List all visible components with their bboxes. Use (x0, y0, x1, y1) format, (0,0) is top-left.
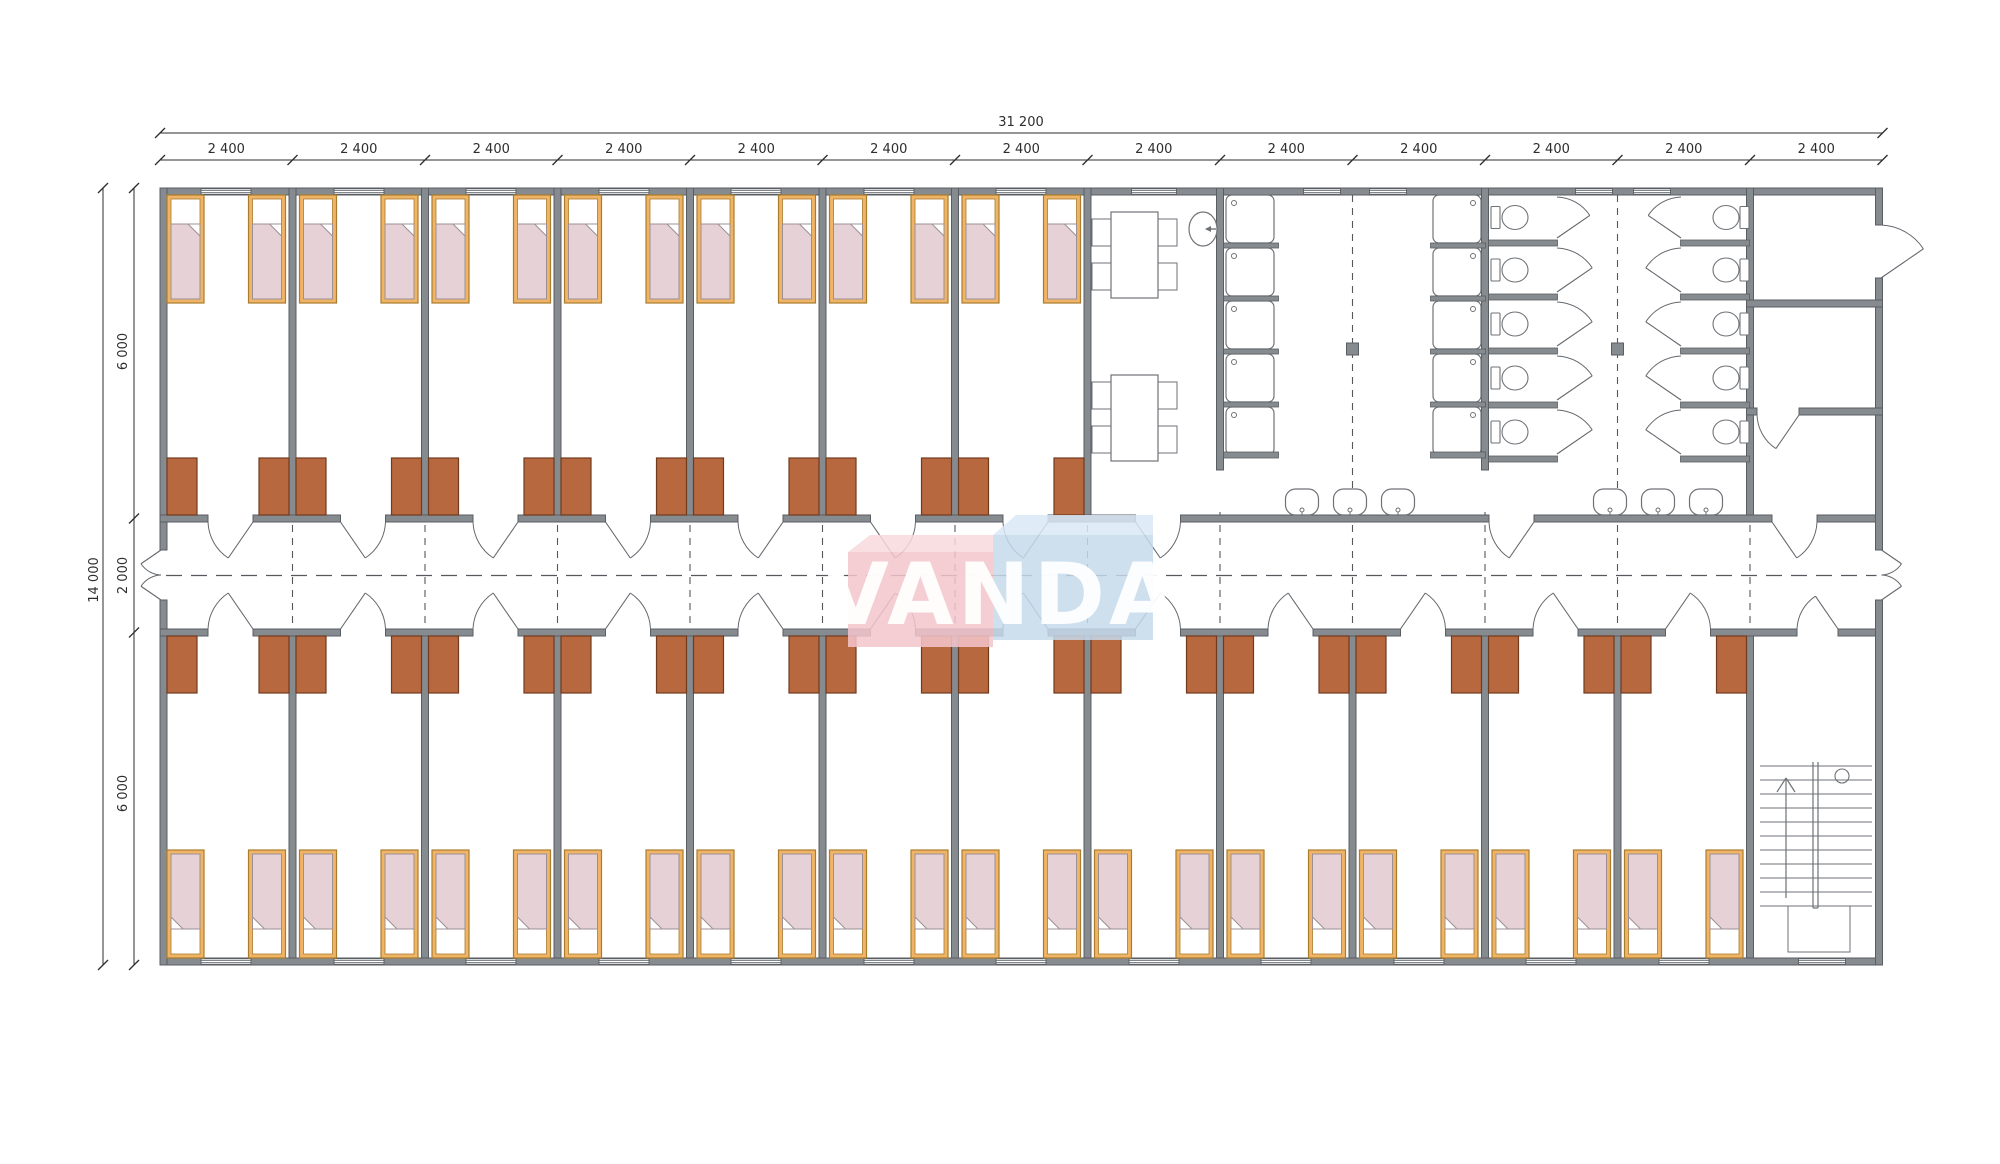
wall (160, 188, 167, 550)
wall (1876, 188, 1883, 225)
shower-divider (1224, 349, 1279, 354)
wardrobe (826, 458, 856, 515)
window (1659, 959, 1709, 964)
bed-pillow (304, 929, 333, 954)
wall (1181, 629, 1269, 636)
wardrobe (561, 458, 591, 515)
wall (651, 629, 739, 636)
bed-pillow (171, 199, 200, 224)
door-leaf (606, 522, 631, 558)
dim-module-label: 2 400 (1400, 142, 1437, 157)
wall (952, 188, 959, 515)
wall (1876, 600, 1883, 965)
wall (1084, 188, 1091, 515)
bed-blanket (385, 854, 414, 929)
door-swing (1557, 248, 1592, 268)
wardrobe (1452, 636, 1482, 693)
dim-total-width-label: 31 200 (998, 115, 1044, 130)
door-swing (1690, 593, 1710, 629)
wash-basin (1286, 489, 1319, 515)
window (1526, 959, 1576, 964)
door-swing (1557, 302, 1592, 322)
chair (1092, 426, 1112, 453)
wardrobe (657, 636, 687, 693)
wardrobe (1489, 636, 1519, 693)
wardrobe (1621, 636, 1651, 693)
logo-blue-flap (993, 515, 1153, 535)
door-leaf (758, 522, 783, 558)
toilet (1502, 206, 1528, 230)
wardrobe (524, 636, 554, 693)
bed-blanket (385, 224, 414, 299)
door-leaf (1557, 268, 1592, 292)
wall (819, 636, 826, 958)
shower-divider (1224, 296, 1279, 301)
window (1132, 189, 1177, 194)
bed-blanket (1313, 854, 1342, 929)
wardrobe (1187, 636, 1217, 693)
bed-pillow (171, 929, 200, 954)
wash-basin (1642, 489, 1675, 515)
stall-wall (1681, 456, 1750, 462)
wardrobe (167, 636, 197, 693)
door-swing (1557, 356, 1592, 376)
door-swing (1425, 593, 1445, 629)
door-swing (365, 522, 385, 558)
wall (253, 515, 341, 522)
bed-pillow (783, 929, 812, 954)
wall (1084, 636, 1091, 958)
column-marker (1347, 343, 1359, 355)
bed-blanket (436, 224, 465, 299)
bed-blanket (1364, 854, 1393, 929)
bed-pillow (1445, 929, 1474, 954)
bed-pillow (385, 929, 414, 954)
bed-blanket (783, 854, 812, 929)
bedroom-top-row (167, 195, 1081, 303)
bed-pillow (1496, 929, 1525, 954)
door-swing (473, 593, 493, 629)
bed-pillow (1048, 929, 1077, 954)
window (1304, 189, 1341, 194)
dim-module-label: 2 400 (340, 142, 377, 157)
bed-pillow (1364, 929, 1393, 954)
bed-blanket (171, 854, 200, 929)
bed-blanket (1496, 854, 1525, 929)
bed-blanket (569, 854, 598, 929)
bed-blanket (650, 854, 679, 929)
wall (518, 629, 606, 636)
wall (1482, 636, 1489, 958)
wardrobe (259, 458, 289, 515)
door-swing (1557, 197, 1590, 215)
door-leaf (1815, 596, 1838, 629)
door-swing (1268, 593, 1288, 629)
bed-blanket (915, 224, 944, 299)
bed-blanket (304, 224, 333, 299)
stair-marker (1835, 769, 1849, 783)
stall-wall (1489, 456, 1558, 462)
window (1799, 959, 1846, 964)
wall (554, 636, 561, 958)
wardrobe (167, 458, 197, 515)
window (1261, 959, 1311, 964)
toilet-tank (1491, 421, 1500, 443)
dim-module-label: 2 400 (473, 142, 510, 157)
bed-pillow (915, 199, 944, 224)
door-swing (1881, 225, 1923, 249)
wall (1799, 408, 1883, 415)
staircase (1760, 762, 1872, 952)
bed-blanket (518, 224, 547, 299)
door-swing (1557, 410, 1592, 430)
toilet-tank (1491, 313, 1500, 335)
bed-pillow (518, 929, 547, 954)
bed-blanket (1048, 854, 1077, 929)
wardrobe (429, 636, 459, 693)
wall (1578, 629, 1666, 636)
dim-module-label: 2 400 (1135, 142, 1172, 157)
wardrobe (694, 458, 724, 515)
window (731, 189, 781, 194)
bed-blanket (783, 224, 812, 299)
shower-divider (1224, 452, 1279, 458)
shower-tray (1433, 248, 1481, 296)
wash-basin (1382, 489, 1415, 515)
bed-pillow (569, 199, 598, 224)
door-leaf (1509, 522, 1534, 558)
door-leaf (606, 593, 631, 629)
dining-area (1092, 212, 1217, 461)
door-swing (1757, 415, 1776, 449)
dim-module-label: 2 400 (1533, 142, 1570, 157)
dim-left-label: 6 000 (116, 333, 131, 370)
wardrobe (1224, 636, 1254, 693)
door-leaf (1553, 593, 1578, 629)
door-leaf (1666, 593, 1691, 629)
wall (1181, 515, 1490, 522)
bed-blanket (966, 854, 995, 929)
stall-wall (1681, 348, 1750, 354)
wash-basin (1334, 489, 1367, 515)
dim-module-label: 2 400 (1003, 142, 1040, 157)
door-leaf (1646, 322, 1681, 346)
bed-blanket (701, 224, 730, 299)
door-leaf (341, 522, 366, 558)
bed-blanket (966, 224, 995, 299)
wall (916, 515, 1004, 522)
shower-divider (1431, 402, 1486, 407)
door-swing (1489, 522, 1509, 558)
floor-plan-canvas: 2 4002 4002 4002 4002 4002 4002 4002 400… (0, 0, 2000, 1164)
wash-basins (1286, 489, 1723, 515)
door-leaf (1288, 593, 1313, 629)
shower-divider (1431, 349, 1486, 354)
window (864, 959, 914, 964)
dim-module-label: 2 400 (870, 142, 907, 157)
bed-pillow (518, 199, 547, 224)
wall (289, 636, 296, 958)
wall (783, 515, 871, 522)
toilet (1713, 206, 1739, 230)
wardrobe (1356, 636, 1386, 693)
door-leaf (493, 593, 518, 629)
bed-blanket (171, 224, 200, 299)
bed-pillow (701, 199, 730, 224)
wall (422, 188, 429, 515)
bed-blanket (253, 854, 282, 929)
bed-blanket (701, 854, 730, 929)
wall (1747, 636, 1754, 958)
toilet (1713, 420, 1739, 444)
window (1394, 959, 1444, 964)
door-leaf (1646, 268, 1681, 292)
bed-blanket (1180, 854, 1209, 929)
door-leaf (1772, 522, 1797, 558)
shower-divider (1431, 243, 1486, 248)
shower-divider (1224, 243, 1279, 248)
door-swing (1648, 197, 1681, 215)
bed-pillow (385, 199, 414, 224)
bed-pillow (1099, 929, 1128, 954)
wall (1534, 515, 1772, 522)
bed-blanket (1048, 224, 1077, 299)
bed-blanket (915, 854, 944, 929)
bed-blanket (1099, 854, 1128, 929)
wall (952, 636, 959, 958)
wall (386, 515, 474, 522)
door-swing (1882, 564, 1902, 575)
toilet (1502, 312, 1528, 336)
door-leaf (1776, 415, 1799, 449)
wall (160, 600, 167, 965)
wall (554, 188, 561, 515)
bed-blanket (1231, 854, 1260, 929)
door-leaf (1646, 376, 1681, 400)
wardrobe (392, 636, 422, 693)
door-swing (365, 593, 385, 629)
column-marker (1612, 343, 1624, 355)
wash-basin (1690, 489, 1723, 515)
chair (1092, 219, 1112, 246)
wardrobe (959, 458, 989, 515)
door-leaf (493, 522, 518, 558)
wall (1614, 636, 1621, 958)
window (864, 189, 914, 194)
door-leaf (141, 550, 161, 564)
stair-landing (1788, 906, 1850, 952)
door-swing (738, 593, 758, 629)
window (996, 959, 1046, 964)
toilet-tank (1491, 367, 1500, 389)
logo-text: VANDA (822, 545, 1179, 645)
toilet-tank (1491, 207, 1500, 229)
toilet (1502, 420, 1528, 444)
window (731, 959, 781, 964)
window (466, 189, 516, 194)
wardrobe (296, 636, 326, 693)
wardrobe (259, 636, 289, 693)
bed-pillow (253, 199, 282, 224)
stall-wall (1489, 348, 1558, 354)
stall-wall (1489, 240, 1558, 246)
door-swing (1882, 575, 1902, 586)
door-leaf (1882, 550, 1902, 564)
wardrobe (429, 458, 459, 515)
wall (1217, 636, 1224, 958)
shower-divider (1431, 296, 1486, 301)
window (334, 189, 384, 194)
bed-pillow (1629, 929, 1658, 954)
dim-left-label: 2 000 (116, 557, 131, 594)
wall (289, 188, 296, 515)
shower-tray (1433, 354, 1481, 402)
door-swing (738, 522, 758, 558)
chair (1092, 382, 1112, 409)
toilet (1502, 366, 1528, 390)
bed-blanket (1710, 854, 1739, 929)
wall (1838, 629, 1876, 636)
dim-module-label: 2 400 (738, 142, 775, 157)
bed-pillow (834, 929, 863, 954)
window (334, 959, 384, 964)
chair (1157, 263, 1177, 290)
shower-tray (1226, 301, 1274, 349)
toilet-tank (1740, 207, 1749, 229)
window (201, 959, 251, 964)
bed-pillow (1710, 929, 1739, 954)
toilet-tank (1740, 259, 1749, 281)
wardrobe (296, 458, 326, 515)
window (1370, 189, 1407, 194)
shower-tray (1433, 301, 1481, 349)
wardrobe (561, 636, 591, 693)
toilet-tank (1491, 259, 1500, 281)
dining-table (1111, 375, 1158, 461)
bed-pillow (834, 199, 863, 224)
bed-blanket (436, 854, 465, 929)
chair (1157, 426, 1177, 453)
wall (1747, 300, 1883, 307)
dim-module-label: 2 400 (1665, 142, 1702, 157)
window (1576, 189, 1613, 194)
shower-divider (1224, 402, 1279, 407)
bed-pillow (1180, 929, 1209, 954)
shower-divider (1431, 452, 1486, 458)
toilet-tank (1740, 421, 1749, 443)
wardrobe (922, 458, 952, 515)
toilet (1713, 258, 1739, 282)
stall-wall (1681, 294, 1750, 300)
door-swing (1533, 593, 1553, 629)
wall (422, 636, 429, 958)
chair (1157, 219, 1177, 246)
shower-trays (1224, 195, 1486, 458)
bed-pillow (1578, 929, 1607, 954)
wall (253, 629, 341, 636)
bed-blanket (834, 224, 863, 299)
wall (1349, 636, 1356, 958)
bed-pillow (436, 199, 465, 224)
door-leaf (1882, 586, 1902, 600)
wardrobe (789, 636, 819, 693)
bed-blanket (1445, 854, 1474, 929)
shower-tray (1226, 195, 1274, 243)
bed-pillow (1231, 929, 1260, 954)
shower-tray (1226, 248, 1274, 296)
wall (1711, 629, 1798, 636)
door-leaf (341, 593, 366, 629)
wall (651, 515, 739, 522)
dim-module-label: 2 400 (1268, 142, 1305, 157)
door-leaf (758, 593, 783, 629)
wash-basin (1594, 489, 1627, 515)
door-swing (141, 564, 161, 575)
window (1634, 189, 1671, 194)
stall-wall (1681, 240, 1750, 246)
wall (1313, 629, 1401, 636)
shower-tray (1433, 407, 1481, 455)
shower-tray (1226, 354, 1274, 402)
wall (160, 515, 208, 522)
door-swing (1797, 522, 1817, 558)
wall (386, 629, 474, 636)
door-leaf (1648, 215, 1681, 238)
door-leaf (228, 522, 253, 558)
door-leaf (1646, 430, 1681, 454)
bed-pillow (1048, 199, 1077, 224)
window (599, 959, 649, 964)
bed-blanket (1578, 854, 1607, 929)
bed-blanket (1629, 854, 1658, 929)
door-swing (630, 593, 650, 629)
wardrobe (694, 636, 724, 693)
stall-wall (1489, 402, 1558, 408)
wardrobe (392, 458, 422, 515)
dim-module-label: 2 400 (605, 142, 642, 157)
bed-pillow (966, 199, 995, 224)
window (996, 189, 1046, 194)
door-leaf (1557, 215, 1590, 238)
bed-pillow (650, 929, 679, 954)
door-swing (1646, 356, 1681, 376)
dining-table (1111, 212, 1158, 298)
bed-pillow (915, 929, 944, 954)
chair (1092, 263, 1112, 290)
wardrobe (1584, 636, 1614, 693)
dim-total-height-label: 14 000 (87, 557, 102, 603)
toilet-tank (1740, 367, 1749, 389)
window (201, 189, 251, 194)
bed-pillow (436, 929, 465, 954)
wardrobe (524, 458, 554, 515)
shower-tray (1226, 407, 1274, 455)
shower-tray (1433, 195, 1481, 243)
wardrobe (1054, 458, 1084, 515)
wall (819, 188, 826, 515)
bed-pillow (966, 929, 995, 954)
door-leaf (1881, 249, 1923, 278)
door-swing (1646, 302, 1681, 322)
wall (160, 629, 208, 636)
wardrobe (789, 458, 819, 515)
toilet (1713, 312, 1739, 336)
bed-blanket (518, 854, 547, 929)
wardrobe (1717, 636, 1747, 693)
bed-pillow (1313, 929, 1342, 954)
bed-pillow (253, 929, 282, 954)
window (1129, 959, 1179, 964)
